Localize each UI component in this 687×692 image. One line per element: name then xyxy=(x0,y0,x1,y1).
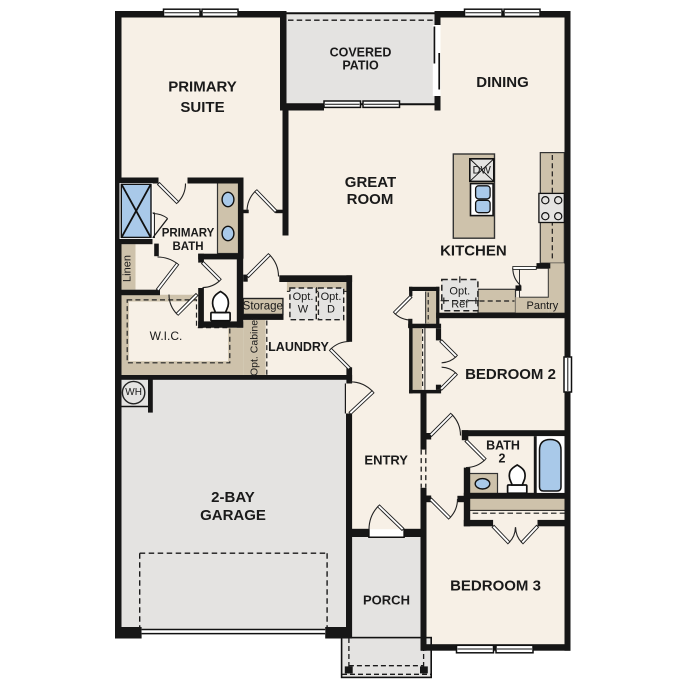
svg-text:W: W xyxy=(298,304,309,316)
svg-text:WH: WH xyxy=(125,387,142,398)
svg-text:SUITE: SUITE xyxy=(180,99,224,116)
svg-text:W.I.C.: W.I.C. xyxy=(150,329,183,343)
svg-text:BATH: BATH xyxy=(172,241,203,253)
svg-text:PATIO: PATIO xyxy=(342,59,379,73)
svg-text:DW: DW xyxy=(473,165,492,177)
svg-text:LAUNDRY: LAUNDRY xyxy=(268,340,329,354)
svg-text:Storage: Storage xyxy=(243,301,283,313)
svg-text:BEDROOM 3: BEDROOM 3 xyxy=(450,578,541,595)
svg-text:DINING: DINING xyxy=(476,74,529,91)
svg-text:GARAGE: GARAGE xyxy=(200,507,266,524)
svg-text:Opt.: Opt. xyxy=(293,291,314,303)
svg-text:Opt.: Opt. xyxy=(449,286,470,298)
svg-text:PRIMARY: PRIMARY xyxy=(162,228,215,240)
svg-text:COVERED: COVERED xyxy=(330,45,392,59)
svg-text:Linen: Linen xyxy=(121,255,133,282)
svg-text:2-BAY: 2-BAY xyxy=(211,489,255,506)
svg-text:GREAT: GREAT xyxy=(345,174,396,191)
svg-text:Opt. Cabinet: Opt. Cabinet xyxy=(248,317,260,376)
svg-text:ROOM: ROOM xyxy=(347,191,394,208)
svg-text:ENTRY: ENTRY xyxy=(364,453,408,468)
svg-text:Opt.: Opt. xyxy=(321,291,342,303)
svg-text:D: D xyxy=(327,304,335,316)
svg-text:Pantry: Pantry xyxy=(527,300,559,312)
svg-text:Ref: Ref xyxy=(451,299,469,311)
svg-text:BATH: BATH xyxy=(486,439,520,453)
svg-text:PORCH: PORCH xyxy=(363,593,410,608)
svg-text:KITCHEN: KITCHEN xyxy=(440,243,507,260)
svg-text:2: 2 xyxy=(499,452,506,466)
svg-text:BEDROOM 2: BEDROOM 2 xyxy=(465,366,556,383)
svg-text:PRIMARY: PRIMARY xyxy=(168,79,237,96)
